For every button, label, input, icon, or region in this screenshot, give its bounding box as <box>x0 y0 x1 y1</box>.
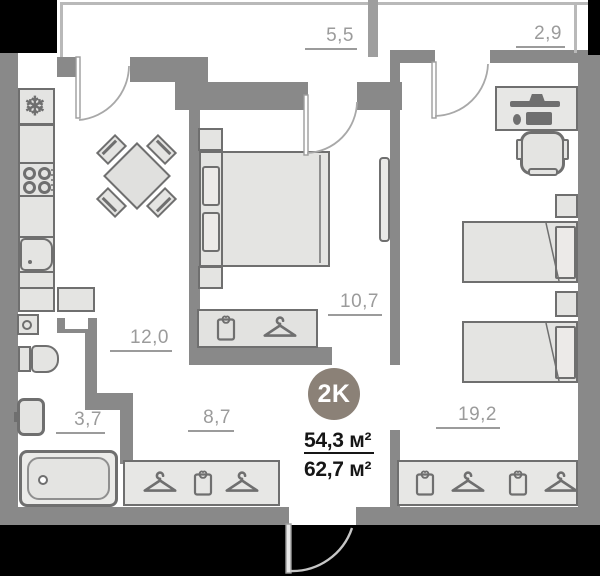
shirt-icon <box>215 313 237 343</box>
hanger-icon <box>450 472 486 494</box>
wall-segment <box>85 393 133 410</box>
stove-knob <box>51 184 53 186</box>
pillow <box>555 226 576 279</box>
door-arc <box>79 66 129 120</box>
kitchen-corner-counter <box>57 287 95 312</box>
heater-dial <box>22 320 32 330</box>
monitor-icon <box>510 101 560 107</box>
footboard-line <box>319 155 321 263</box>
nightstand <box>198 266 223 289</box>
mouse-icon <box>513 114 521 125</box>
nightstand <box>555 194 578 218</box>
badge-label: 2K <box>318 380 351 409</box>
stove-knob <box>51 179 53 181</box>
door-arc <box>435 64 488 116</box>
pillow <box>202 212 220 252</box>
wall-segment <box>578 50 600 528</box>
hanger-icon <box>224 472 260 494</box>
chair-armrest <box>562 139 569 160</box>
wall-segment <box>490 50 582 63</box>
door-arc <box>307 102 357 153</box>
water-heater <box>17 314 39 335</box>
counter-divider <box>18 271 55 273</box>
toilet-tank <box>18 346 31 372</box>
wall-segment <box>390 50 435 63</box>
tv <box>379 157 390 242</box>
bathroom-door-opening <box>65 318 88 329</box>
hanger-icon <box>142 472 178 494</box>
tv-mount <box>390 192 396 207</box>
wall-segment <box>85 333 97 395</box>
bathtub-drain <box>38 475 48 485</box>
floor-plan: ❄ <box>0 0 600 576</box>
room-label-kitchen: 12,0 <box>110 328 172 352</box>
room-label-balcony2: 2,9 <box>516 24 565 48</box>
burner-icon <box>23 167 36 180</box>
wall-segment <box>390 63 400 365</box>
hanger-icon <box>262 317 298 339</box>
chair-back <box>156 197 172 213</box>
balcony-divider-wall <box>368 0 378 57</box>
chair-back <box>102 140 118 156</box>
total-area-value: 62,7 м² <box>304 458 371 482</box>
area-divider-line <box>304 452 374 454</box>
double-bed <box>199 151 330 267</box>
burner-icon <box>23 181 36 194</box>
apartment-type-badge: 2K <box>308 368 360 420</box>
chair-back <box>156 140 172 156</box>
chair-armrest <box>516 139 523 160</box>
chair-seat-edge <box>528 168 558 176</box>
toilet-bowl <box>31 345 59 373</box>
shirt-icon <box>414 468 436 498</box>
pillow <box>555 326 576 379</box>
shirt-icon <box>192 468 214 498</box>
room-label-hallway: 8,7 <box>188 408 234 432</box>
bathroom-sink <box>17 398 45 436</box>
stove-knob <box>51 174 53 176</box>
bedroom-door-leaf <box>432 62 436 118</box>
room-label-balcony1: 5,5 <box>305 26 357 50</box>
burner-icon <box>38 167 51 180</box>
stove <box>18 162 55 197</box>
living-area-value: 54,3 м² <box>304 429 371 453</box>
wall-segment <box>0 53 18 530</box>
balcony-glazing <box>60 2 373 5</box>
wall-segment <box>120 410 133 464</box>
kitchen-sink <box>20 238 53 271</box>
stove-knob <box>51 189 53 191</box>
balcony-glazing <box>378 2 588 5</box>
nightstand <box>198 128 223 151</box>
room-label-bedroom2: 19,2 <box>436 405 500 429</box>
pillow <box>202 166 220 206</box>
burner-icon <box>38 181 51 194</box>
sink-drain <box>28 260 32 264</box>
headboard-line <box>221 153 223 265</box>
sink-faucet <box>14 412 20 422</box>
chair-back <box>102 197 118 213</box>
fridge-snowflake-icon: ❄ <box>24 93 46 119</box>
bathtub <box>19 450 118 507</box>
outside-area <box>0 525 600 576</box>
shirt-icon <box>507 468 529 498</box>
hanger-icon <box>543 472 579 494</box>
wall-segment <box>57 57 77 77</box>
room-label-bathroom: 3,7 <box>56 410 105 434</box>
kitchen-corner-counter <box>18 287 55 312</box>
stove-knob <box>51 169 53 171</box>
keyboard-icon <box>526 112 552 125</box>
outside-area <box>588 0 600 55</box>
wall-segment <box>130 57 208 82</box>
outside-area <box>0 0 57 53</box>
balcony-glazing <box>60 2 63 57</box>
entrance-opening <box>289 507 356 525</box>
wall-segment <box>189 347 332 365</box>
balcony-glazing <box>574 2 577 53</box>
room-label-bedroom1: 10,7 <box>328 292 382 316</box>
nightstand <box>555 291 578 317</box>
